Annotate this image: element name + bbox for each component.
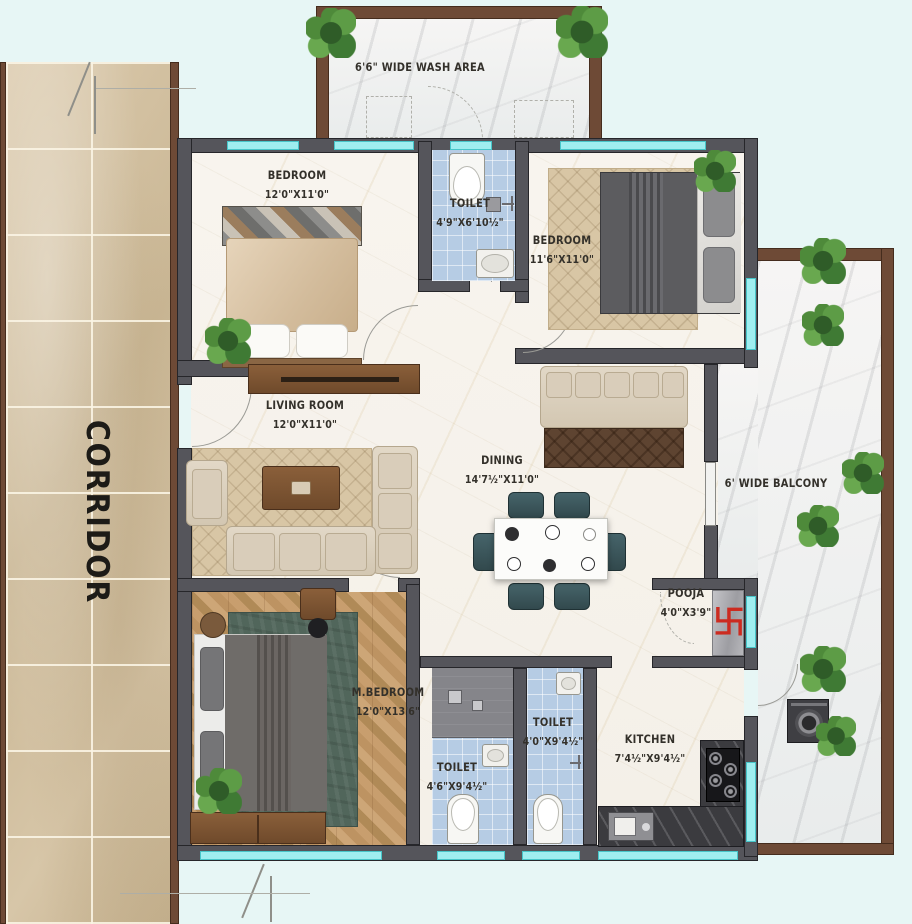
armchair <box>186 460 228 526</box>
bedroom2-label: BEDROOM 11'6"X11'0" <box>530 231 594 269</box>
washer-panel <box>791 703 827 706</box>
pooja-label: POOJA 4'0"X3'9" <box>661 584 712 622</box>
plant-icon <box>802 304 844 346</box>
dining-chair <box>554 492 590 519</box>
window <box>746 762 756 842</box>
dining-chair <box>508 583 544 610</box>
wash-counter-outline <box>514 100 574 138</box>
side-table <box>200 612 226 638</box>
dining-chair <box>554 583 590 610</box>
wall-toilets-top <box>420 656 612 668</box>
dining-table <box>494 518 608 580</box>
break-mark-icon <box>94 76 96 134</box>
wash-counter-outline <box>366 96 412 138</box>
plant-icon <box>205 318 251 364</box>
window <box>200 851 382 860</box>
plate-icon <box>543 559 556 572</box>
tv-console <box>248 364 420 394</box>
balcony-floor <box>718 364 758 578</box>
dining-label: DINING 14'7½"X11'0" <box>465 451 539 489</box>
toilet-bl-label: TOILET 4'6"X9'4½" <box>427 758 488 796</box>
shower-head-icon <box>472 700 483 711</box>
washbasin-icon <box>476 249 514 278</box>
plant-icon <box>797 505 839 547</box>
corridor-wall-left <box>0 62 6 924</box>
bed-pillow <box>200 647 224 711</box>
bed-drape <box>257 635 291 811</box>
sofa-cushion <box>378 533 412 569</box>
balcony-wall-bottom <box>752 843 894 855</box>
burner-icon <box>724 763 737 776</box>
sink-basin <box>614 817 636 836</box>
living-room-label: LIVING ROOM 12'0"X11'0" <box>266 396 344 434</box>
plant-icon <box>842 452 884 494</box>
bed-pillow <box>703 247 735 303</box>
wall-bedroom2-bottom <box>515 348 758 364</box>
table-decor <box>291 481 311 495</box>
sofa-cushion <box>233 533 275 571</box>
wall-toilet3-kitchen <box>583 668 597 845</box>
dresser-divider <box>257 815 259 843</box>
window <box>522 851 580 860</box>
faucet-icon <box>642 823 650 831</box>
stool <box>308 618 328 638</box>
coffee-table <box>262 466 340 510</box>
window <box>227 141 299 150</box>
sofa-cushion <box>604 372 630 398</box>
bed-drape <box>629 173 663 313</box>
corridor-label: CORRIDOR <box>79 420 115 604</box>
toilet-bm-label: TOILET 4'0"X9'4½" <box>523 713 584 751</box>
plate-icon <box>583 528 596 541</box>
plant-icon <box>816 716 856 756</box>
swastika-icon: 卐 <box>709 600 749 644</box>
dining-rug <box>544 428 684 468</box>
shower-mixer-icon <box>448 690 462 704</box>
mbedroom-label: M.BEDROOM 12'0"X13'6" <box>352 683 425 721</box>
burner-icon <box>709 752 722 765</box>
tap-icon <box>578 755 580 769</box>
tap-icon <box>511 196 513 211</box>
plant-icon <box>694 150 736 192</box>
toilet-wc-icon <box>447 794 479 844</box>
bed-pillow <box>296 324 348 358</box>
bedroom-bench <box>300 588 336 620</box>
sofa-cushion <box>546 372 572 398</box>
bed <box>600 172 740 314</box>
kitchen-sink-icon <box>608 812 654 841</box>
toilet-top-label: TOILET 4'9"X6'10½" <box>436 194 504 232</box>
sofa-cushion <box>633 372 659 398</box>
armchair-cushion <box>192 469 222 519</box>
plate-icon <box>545 525 560 540</box>
plant-icon <box>556 6 608 58</box>
wall-left-upper <box>177 138 192 385</box>
wall-dining-balcony-upper <box>704 364 718 462</box>
balcony-wall-right <box>881 248 894 855</box>
sofa-cushion <box>378 453 412 489</box>
plant-icon <box>306 8 356 58</box>
washbasin-icon <box>556 672 581 695</box>
plate-icon <box>581 557 595 571</box>
wall-dining-balcony-lower <box>704 525 718 580</box>
window <box>450 141 492 150</box>
burner-icon <box>724 785 737 798</box>
floor-plan: CORRIDOR 6'6" WIDE WASH AREA 6' WIDE BAL… <box>0 0 912 924</box>
plate-icon <box>505 527 519 541</box>
sofa <box>372 446 418 574</box>
sofa-cushion <box>279 533 321 571</box>
sofa <box>226 526 376 576</box>
sofa-cushion <box>575 372 601 398</box>
plant-icon <box>196 768 242 814</box>
burner-icon <box>709 774 722 787</box>
stove-icon <box>706 748 740 802</box>
dining-chair <box>508 492 544 519</box>
wash-area-label: 6'6" WIDE WASH AREA <box>355 58 485 78</box>
balcony-label: 6' WIDE BALCONY <box>725 474 828 494</box>
plate-icon <box>507 557 521 571</box>
break-mark-icon <box>270 876 272 922</box>
plant-icon <box>800 646 846 692</box>
window <box>598 851 738 860</box>
kitchen-label: KITCHEN 7'4½"X9'4½" <box>615 730 686 768</box>
reference-line <box>96 88 196 89</box>
wall-toilet2-toilet3 <box>513 668 527 845</box>
break-mark-icon <box>241 864 265 919</box>
window <box>334 141 414 150</box>
toilet-wc-icon <box>533 794 563 844</box>
dresser <box>190 812 326 844</box>
dining-sofa <box>540 366 688 428</box>
tv-icon <box>281 377 399 382</box>
plant-icon <box>800 238 846 284</box>
balcony-door-leaf <box>705 462 716 526</box>
sofa-cushion <box>378 493 412 529</box>
window <box>560 141 706 150</box>
wall-pooja-bottom <box>652 656 758 668</box>
window <box>746 278 756 350</box>
sofa-cushion <box>662 372 684 398</box>
bedroom1-label: BEDROOM 12'0"X11'0" <box>265 166 329 204</box>
reference-line <box>120 893 310 894</box>
window <box>437 851 505 860</box>
sofa-cushion <box>325 533 367 571</box>
wall-toilet-top-left <box>418 141 432 287</box>
